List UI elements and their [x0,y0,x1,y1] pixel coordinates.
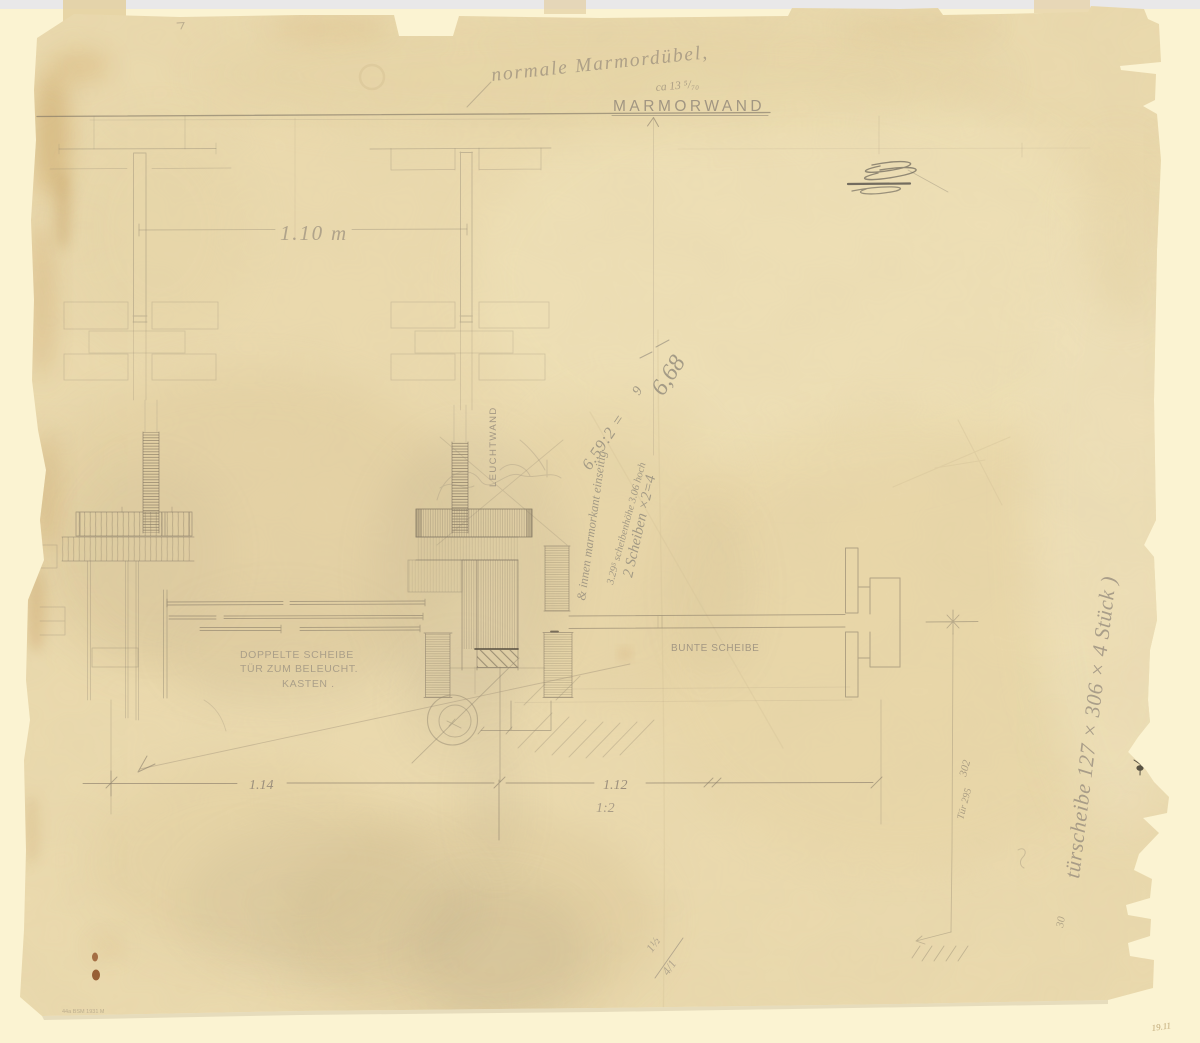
svg-text:KASTEN .: KASTEN . [282,678,335,690]
svg-text:MARMORWAND: MARMORWAND [613,98,765,115]
svg-text:1.14: 1.14 [249,778,274,793]
svg-text:DOPPELTE SCHEIBE: DOPPELTE SCHEIBE [240,649,354,661]
svg-text:BUNTE SCHEIBE: BUNTE SCHEIBE [671,643,759,654]
svg-text:LEUCHTWAND: LEUCHTWAND [488,406,499,487]
svg-text:1.10 m: 1.10 m [280,221,348,245]
svg-text:44a BSM 1931 M: 44a BSM 1931 M [62,1009,105,1015]
svg-text:1.12: 1.12 [603,778,628,793]
svg-text:TÜR ZUM BELEUCHT.: TÜR ZUM BELEUCHT. [240,663,358,675]
svg-text:1:2: 1:2 [596,801,615,816]
